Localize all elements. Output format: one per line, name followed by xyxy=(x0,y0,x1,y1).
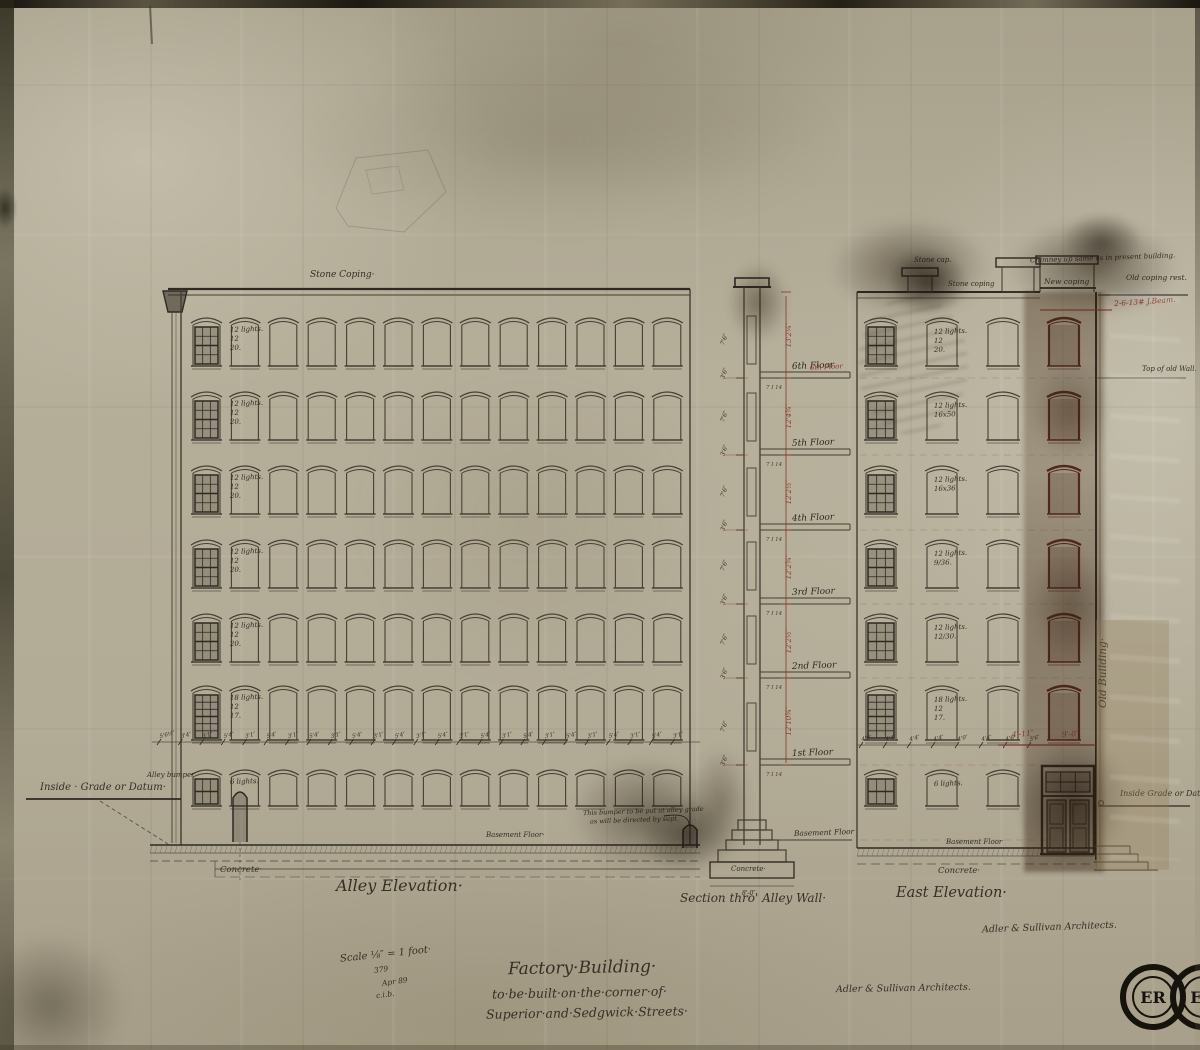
svg-text:16x50.: 16x50. xyxy=(934,410,958,419)
sheet-edge-top xyxy=(0,0,1200,8)
svg-text:9/36.: 9/36. xyxy=(934,558,952,567)
svg-text:7'6″: 7'6″ xyxy=(719,332,730,346)
svg-text:5'6½″: 5'6½″ xyxy=(159,729,177,740)
svg-text:4th Floor: 4th Floor xyxy=(791,513,835,525)
datum-east-label: Inside Grade or Datum xyxy=(1120,790,1200,798)
stone-coping-label: Stone Coping· xyxy=(310,271,375,280)
svg-text:4'4″: 4'4″ xyxy=(980,734,994,743)
old-coping-label: Old coping rest. xyxy=(1126,274,1187,282)
svg-text:12'2½″: 12'2½″ xyxy=(785,479,793,504)
svg-text:12 lights.: 12 lights. xyxy=(230,621,263,630)
svg-text:2nd Floor: 2nd Floor xyxy=(791,660,837,672)
svg-text:5'4″: 5'4″ xyxy=(566,731,579,740)
svg-text:20.: 20. xyxy=(229,492,241,500)
svg-text:7'6″: 7'6″ xyxy=(719,719,730,733)
er-stamp-letters: ER xyxy=(1140,988,1166,1007)
svg-text:12 lights.: 12 lights. xyxy=(230,399,263,408)
svg-text:9'-0″: 9'-0″ xyxy=(1062,729,1080,739)
svg-text:5'4″: 5'4″ xyxy=(266,731,279,740)
title-line-2: to·be·built·on·the·corner·of· xyxy=(492,984,667,1000)
svg-text:3'1″: 3'1″ xyxy=(630,731,643,740)
old-building-label: Old Building· xyxy=(1098,638,1109,708)
svg-text:12 lights.: 12 lights. xyxy=(934,475,967,484)
svg-text:12/30.: 12/30. xyxy=(934,632,957,641)
svg-text:3rd Floor: 3rd Floor xyxy=(792,586,836,598)
svg-text:20.: 20. xyxy=(229,566,241,574)
svg-text:6 lights.: 6 lights. xyxy=(934,779,963,788)
stone-cap-label: Stone cap. xyxy=(914,257,952,264)
svg-text:5'4″: 5'4″ xyxy=(651,731,664,740)
svg-text:12: 12 xyxy=(230,703,240,711)
svg-text:7 I 14: 7 I 14 xyxy=(766,772,783,778)
svg-text:12: 12 xyxy=(230,631,240,639)
section-drawing: 6th Floor7 I 145th Floor7 I 144th Floor7… xyxy=(710,278,1094,897)
svg-text:6 lights.: 6 lights. xyxy=(230,777,259,786)
svg-text:16x36.: 16x36. xyxy=(934,484,958,493)
svg-text:4'4″: 4'4″ xyxy=(908,734,922,743)
svg-text:12: 12 xyxy=(934,705,944,713)
svg-text:12 lights.: 12 lights. xyxy=(934,401,967,410)
title-line-3: Superior·and·Sedgwick·Streets· xyxy=(486,1004,688,1021)
svg-text:3'1″: 3'1″ xyxy=(501,731,514,740)
svg-text:7'6″: 7'6″ xyxy=(719,484,730,498)
svg-text:5'4″: 5'4″ xyxy=(309,731,322,740)
svg-text:5'4″: 5'4″ xyxy=(437,731,450,740)
svg-text:13'2¼″: 13'2¼″ xyxy=(785,322,793,347)
svg-text:12: 12 xyxy=(230,557,240,565)
svg-text:7'6″: 7'6″ xyxy=(719,409,730,423)
drawing-sheet: 12 lights.1220.12 lights.1220.12 lights.… xyxy=(0,0,1200,1050)
svg-text:20.: 20. xyxy=(229,344,241,352)
svg-text:12: 12 xyxy=(230,483,240,491)
svg-text:12 lights.: 12 lights. xyxy=(934,623,967,632)
east-elevation-label: East Elevation· xyxy=(896,886,1007,901)
sheet-edge-left xyxy=(0,0,14,1050)
er-stamp-ring: ER xyxy=(1132,976,1174,1018)
svg-text:20.: 20. xyxy=(229,640,241,648)
svg-text:7 I 14: 7 I 14 xyxy=(766,385,783,391)
svg-text:3'1″: 3'1″ xyxy=(673,731,686,740)
svg-text:4'0″: 4'0″ xyxy=(956,734,970,743)
svg-text:1st Floor: 1st Floor xyxy=(792,748,834,759)
top-old-wall-label: Top of old Wall. xyxy=(1142,366,1197,373)
svg-text:7 I 14: 7 I 14 xyxy=(766,462,783,468)
linework-canvas: 12 lights.1220.12 lights.1220.12 lights.… xyxy=(0,0,1200,1050)
svg-text:5'4″: 5'4″ xyxy=(223,731,236,740)
east-stone-coping-label: Stone coping xyxy=(948,281,995,288)
svg-text:17.: 17. xyxy=(934,714,945,722)
svg-text:3'4″: 3'4″ xyxy=(180,731,193,740)
svg-text:3'1″: 3'1″ xyxy=(287,731,300,740)
svg-text:3'1″: 3'1″ xyxy=(330,731,343,740)
section-label: Section thro' Alley Wall· xyxy=(680,892,826,905)
alley-bumper-label: Alley bumper xyxy=(147,772,194,779)
svg-text:5'4″: 5'4″ xyxy=(352,731,365,740)
svg-text:5'4″: 5'4″ xyxy=(523,731,536,740)
svg-text:20.: 20. xyxy=(933,346,945,354)
east-concrete-label: Concrete· xyxy=(938,867,980,876)
svg-text:20.: 20. xyxy=(229,418,241,426)
svg-text:12'10¾″: 12'10¾″ xyxy=(785,706,793,736)
svg-text:6th Floor: 6th Floor xyxy=(810,362,844,372)
svg-text:12'2¾″: 12'2¾″ xyxy=(785,554,793,579)
svg-text:12'2½″: 12'2½″ xyxy=(785,628,793,653)
pencil-sketch xyxy=(150,6,446,232)
alley-elevation-label: Alley Elevation· xyxy=(336,878,463,895)
svg-text:17.: 17. xyxy=(230,712,241,720)
svg-text:7 I 14: 7 I 14 xyxy=(766,611,783,617)
svg-text:3'1″: 3'1″ xyxy=(245,731,258,740)
alley-concrete-label: Concrete· xyxy=(220,866,262,875)
east-elevation-drawing: 12 lights.1220.12 lights.16x50.12 lights… xyxy=(857,256,1190,870)
datum-left-label: Inside · Grade or Datum· xyxy=(40,783,166,794)
svg-text:7 I 14: 7 I 14 xyxy=(766,685,783,691)
svg-text:7'6″: 7'6″ xyxy=(719,632,730,646)
svg-text:5'4″: 5'4″ xyxy=(480,731,493,740)
svg-text:18 lights.: 18 lights. xyxy=(230,693,263,702)
svg-text:12: 12 xyxy=(934,337,944,345)
svg-text:12: 12 xyxy=(230,409,240,417)
title-line-1: Factory·Building· xyxy=(508,959,657,979)
svg-text:7'6″: 7'6″ xyxy=(719,558,730,572)
svg-text:3'1″: 3'1″ xyxy=(587,731,600,740)
svg-text:5th Floor: 5th Floor xyxy=(792,438,835,449)
svg-text:Basement Floor: Basement Floor xyxy=(793,827,855,838)
svg-text:18 lights.: 18 lights. xyxy=(934,695,967,704)
svg-text:12 lights.: 12 lights. xyxy=(934,549,967,558)
alley-basement-label: Basement Floor· xyxy=(486,832,544,839)
svg-text:12 lights.: 12 lights. xyxy=(230,473,263,482)
svg-text:3'1″: 3'1″ xyxy=(459,731,472,740)
svg-text:4'4″: 4'4″ xyxy=(932,734,946,743)
svg-text:12'4¾″: 12'4¾″ xyxy=(785,403,793,428)
sheet-edge-right xyxy=(1195,0,1200,1050)
sheet-edge-bottom xyxy=(0,1045,1200,1050)
svg-text:3'1″: 3'1″ xyxy=(416,731,429,740)
svg-text:12 lights.: 12 lights. xyxy=(934,327,967,336)
svg-text:4'-11″: 4'-11″ xyxy=(1011,728,1034,739)
new-coping-label: New coping xyxy=(1044,278,1089,286)
svg-text:5'4″: 5'4″ xyxy=(608,731,621,740)
svg-text:12: 12 xyxy=(230,335,240,343)
svg-text:3'1″: 3'1″ xyxy=(544,731,557,740)
east-basement-label: Basement Floor xyxy=(946,839,1002,846)
svg-text:3'1″: 3'1″ xyxy=(373,731,386,740)
svg-text:7 I 14: 7 I 14 xyxy=(766,537,783,543)
svg-text:12 lights.: 12 lights. xyxy=(230,547,263,556)
svg-text:5'4″: 5'4″ xyxy=(394,731,407,740)
svg-text:12 lights.: 12 lights. xyxy=(230,325,263,334)
section-concrete-label: Concrete· xyxy=(731,866,766,873)
